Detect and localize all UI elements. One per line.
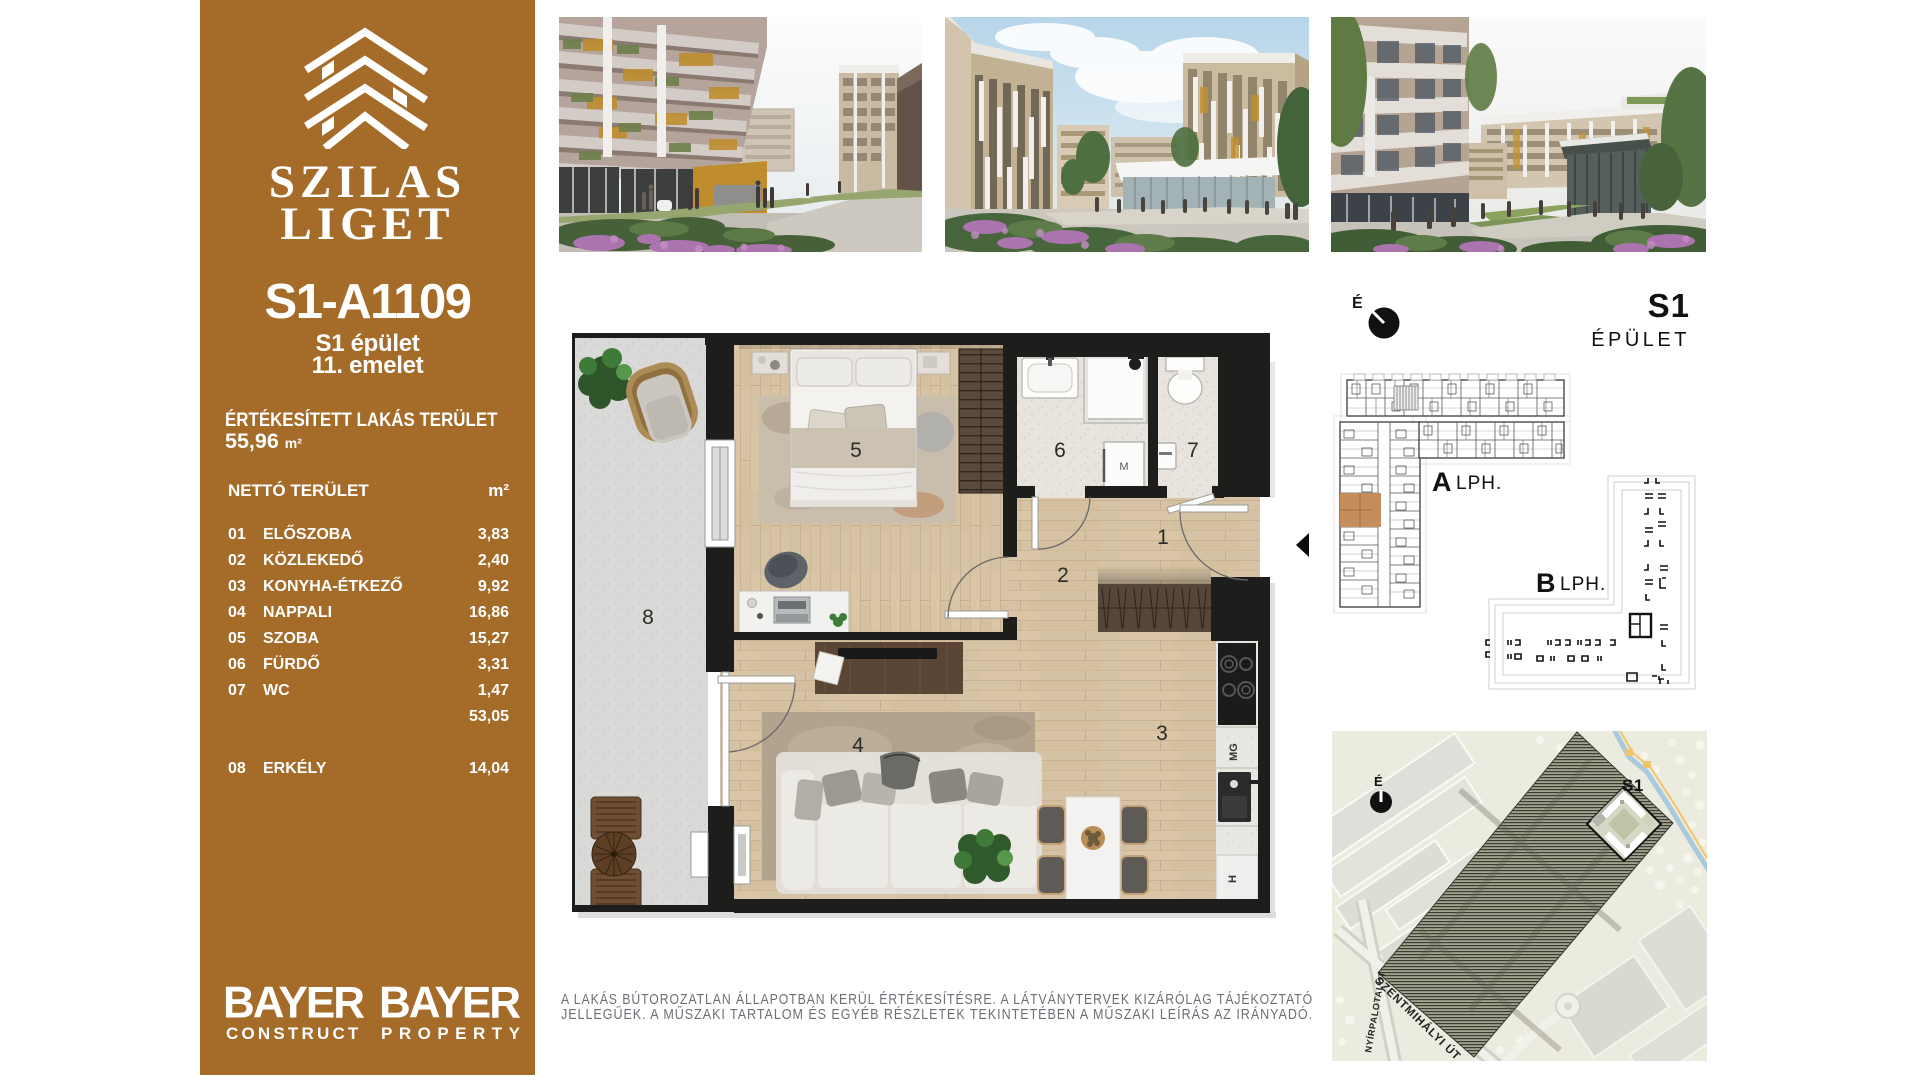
svg-text:É: É [1374,774,1383,789]
svg-text:MG: MG [1228,743,1240,761]
svg-text:8: 8 [642,606,654,629]
svg-text:H: H [1227,875,1239,883]
svg-text:1: 1 [1157,526,1169,549]
svg-text:6: 6 [1054,439,1066,462]
svg-text:LPH.: LPH. [1560,574,1606,595]
svg-text:LPH.: LPH. [1456,473,1502,494]
svg-text:5: 5 [850,439,862,462]
svg-text:A: A [1432,467,1452,497]
svg-text:É: É [1352,293,1363,312]
svg-text:ÉPÜLET: ÉPÜLET [1591,328,1690,351]
svg-text:S1: S1 [1648,287,1690,324]
svg-text:3: 3 [1156,722,1168,745]
svg-text:S1: S1 [1622,776,1644,795]
svg-text:7: 7 [1187,439,1199,462]
svg-text:B: B [1536,568,1556,598]
svg-text:4: 4 [852,734,864,757]
svg-text:2: 2 [1057,564,1069,587]
svg-text:M: M [1119,461,1128,473]
